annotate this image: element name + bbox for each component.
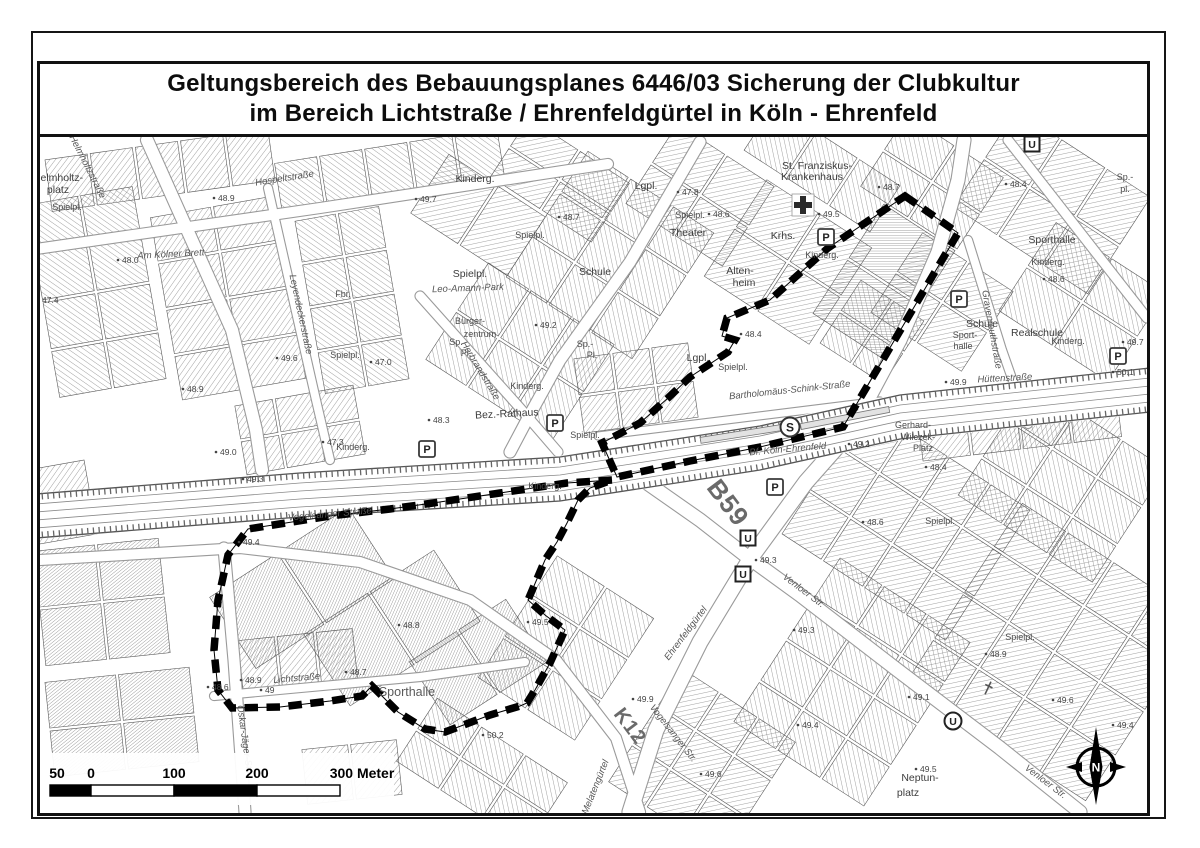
elevation-label: 49.4 <box>243 537 260 547</box>
map-label: Schule <box>579 266 611 278</box>
map-label: Sp.- <box>1117 172 1134 182</box>
map-label: Bartholomäus-Schink-Straße <box>729 379 851 403</box>
map-label: Gerhard- <box>895 420 931 430</box>
map-label: Kinderg. <box>336 442 370 452</box>
scale-label: 0 <box>87 765 95 781</box>
svg-text:S: S <box>786 421 794 435</box>
svg-text:P: P <box>1114 351 1121 363</box>
elevation-label: 48.9 <box>990 649 1007 659</box>
elevation-label: 48.6 <box>1048 274 1065 284</box>
svg-text:P: P <box>822 232 829 244</box>
elevation-label: 49.3 <box>247 474 264 484</box>
map-label: Spielpl. <box>52 202 82 212</box>
elevation-label: 48.4 <box>930 462 947 472</box>
elevation-label: 49.7 <box>1127 337 1144 347</box>
map-label: halle <box>953 341 972 351</box>
svg-text:P: P <box>551 418 558 430</box>
ubahn-icon: U <box>1025 137 1040 152</box>
block-cluster <box>40 187 166 398</box>
parking-icon: P <box>767 479 783 495</box>
map-label: zentrum <box>464 329 497 339</box>
map-label: Kinderg. <box>1031 257 1065 267</box>
elevation-label: 49.7 <box>420 194 437 204</box>
elevation-label: 48.6 <box>867 517 884 527</box>
elevation-label: 48.9 <box>245 675 262 685</box>
parking-icon: P <box>547 415 563 431</box>
map-label: Bürger- <box>455 316 485 326</box>
elevation-label: 49.5 <box>532 617 549 627</box>
elevation-label: 48.3 <box>433 415 450 425</box>
svg-text:P: P <box>423 444 430 456</box>
ubahn-icon: U <box>741 531 756 546</box>
title-block: Geltungsbereich des Bebauungsplanes 6446… <box>40 64 1147 137</box>
elevation-label: 49.6 <box>705 769 722 779</box>
elevation-label: 48.9 <box>187 384 204 394</box>
map-label: Spielpl. <box>515 230 545 240</box>
elevation-label: 49 <box>265 685 275 695</box>
svg-text:P: P <box>955 294 962 306</box>
scale-label: 200 <box>245 765 269 781</box>
map-label: Pl. <box>587 350 598 360</box>
elevation-label: 49.2 <box>853 439 870 449</box>
elevation-label: 48.7 <box>883 182 900 192</box>
svg-text:P: P <box>771 482 778 494</box>
map-area: PPPPPPSUUUU47.448.048.949.647.049.748.74… <box>40 137 1147 813</box>
map-label: Spielpl. <box>675 210 705 220</box>
scale-label: 300 Meter <box>330 765 395 781</box>
svg-text:U: U <box>949 716 957 728</box>
map-label: Krhs. <box>771 230 796 242</box>
map-label: Spielpl. <box>718 362 748 372</box>
elevation-label: 49.5 <box>823 209 840 219</box>
plan-title-line2: im Bereich Lichtstraße / Ehrenfeldgürtel… <box>249 100 937 128</box>
plan-sheet: Geltungsbereich des Bebauungsplanes 6446… <box>37 61 1150 816</box>
elevation-label: 49.3 <box>760 555 777 565</box>
map-label: Kinderg. <box>455 173 494 185</box>
ubahn-icon: U <box>736 567 751 582</box>
elevation-label: 50.1 <box>1117 367 1134 377</box>
elevation-label: 49.3 <box>798 625 815 635</box>
svg-text:U: U <box>1028 139 1036 151</box>
parking-icon: P <box>818 229 834 245</box>
map-label: Melatengürtel <box>580 757 612 813</box>
map-label: Helmholtz- <box>40 172 84 184</box>
scale-label: 100 <box>162 765 186 781</box>
map-label: heim <box>733 277 756 289</box>
elevation-label: 48.9 <box>218 193 235 203</box>
elevation-label: 49.2 <box>540 320 557 330</box>
map-label: Sporthalle <box>1028 234 1075 246</box>
parking-icon: P <box>951 291 967 307</box>
map-label: Kinderg. <box>528 481 562 491</box>
map-label: platz <box>897 787 919 799</box>
parking-icon: P <box>419 441 435 457</box>
elevation-label: 47.4 <box>42 295 59 305</box>
scale-segment <box>174 785 257 796</box>
scale-segment <box>91 785 174 796</box>
plan-document: { "title": { "line1": "Geltungsbereich d… <box>0 0 1200 848</box>
map-label: Theater <box>670 227 707 239</box>
elevation-label: 49.1 <box>913 692 930 702</box>
elevation-label: 48.7 <box>350 667 367 677</box>
elevation-label: 49.0 <box>220 447 237 457</box>
elevation-label: 48.4 <box>1010 179 1027 189</box>
elevation-label: 49.9 <box>637 694 654 704</box>
map-label: Sp.- <box>577 339 594 349</box>
map-label: Sporthalle <box>379 685 435 699</box>
map-label: Fbr. <box>335 289 351 299</box>
elevation-label: 50.2 <box>487 730 504 740</box>
map-canvas: PPPPPPSUUUU47.448.048.949.647.049.748.74… <box>40 137 1147 813</box>
parking-icon: P <box>1110 348 1126 364</box>
map-label: pl. <box>1120 184 1130 194</box>
map-label: Spielpl. <box>925 516 955 526</box>
elevation-label: 48.6 <box>212 682 229 692</box>
elevation-label: 48.6 <box>713 209 730 219</box>
map-label: Platz <box>913 443 934 453</box>
map-label: Lgpl. <box>687 352 710 364</box>
map-label: Sport- <box>953 330 978 340</box>
elevation-label: 49.6 <box>1057 695 1074 705</box>
elevation-label: 47.0 <box>375 357 392 367</box>
elevation-label: 49.4 <box>1117 720 1134 730</box>
map-label: Spielpl. <box>330 350 360 360</box>
elevation-label: 49.6 <box>281 353 298 363</box>
map-label: Neptun- <box>901 772 939 784</box>
elevation-label: 49.9 <box>950 377 967 387</box>
map-label: Lgpl. <box>635 180 658 192</box>
map-label: Spielpl. <box>570 430 600 440</box>
map-label: Spielpl. <box>453 268 487 280</box>
elevation-label: 49.4 <box>802 720 819 730</box>
scale-bar: 500100200300 Meter <box>42 753 395 805</box>
elevation-label: 48.7 <box>563 212 580 222</box>
north-arrow-label: N <box>1092 761 1101 775</box>
elevation-label: 48.8 <box>403 620 420 630</box>
map-label: Krankenhaus <box>781 171 843 183</box>
plan-title-line1: Geltungsbereich des Bebauungsplanes 6446… <box>167 70 1020 98</box>
map-label: Wilczek- <box>901 432 935 442</box>
svg-text:U: U <box>744 533 752 545</box>
scale-label: 50 <box>49 765 65 781</box>
map-label: Spielpl. <box>1005 632 1035 642</box>
map-label: Alten- <box>726 265 754 277</box>
map-label: Kinderg. <box>805 250 839 260</box>
sbahn-icon: S <box>781 418 800 437</box>
hospital-cross-icon <box>792 194 814 216</box>
ubahn-circle-icon: U <box>945 713 962 730</box>
elevation-label: 47.8 <box>682 187 699 197</box>
svg-text:U: U <box>739 569 747 581</box>
scale-segment <box>50 785 91 796</box>
scale-segment <box>257 785 340 796</box>
map-label: Kinderg. <box>1051 336 1085 346</box>
map-label: platz <box>47 184 69 196</box>
elevation-label: 48.4 <box>745 329 762 339</box>
map-label: Kinderg. <box>510 381 544 391</box>
elevation-label: 48.0 <box>122 255 139 265</box>
